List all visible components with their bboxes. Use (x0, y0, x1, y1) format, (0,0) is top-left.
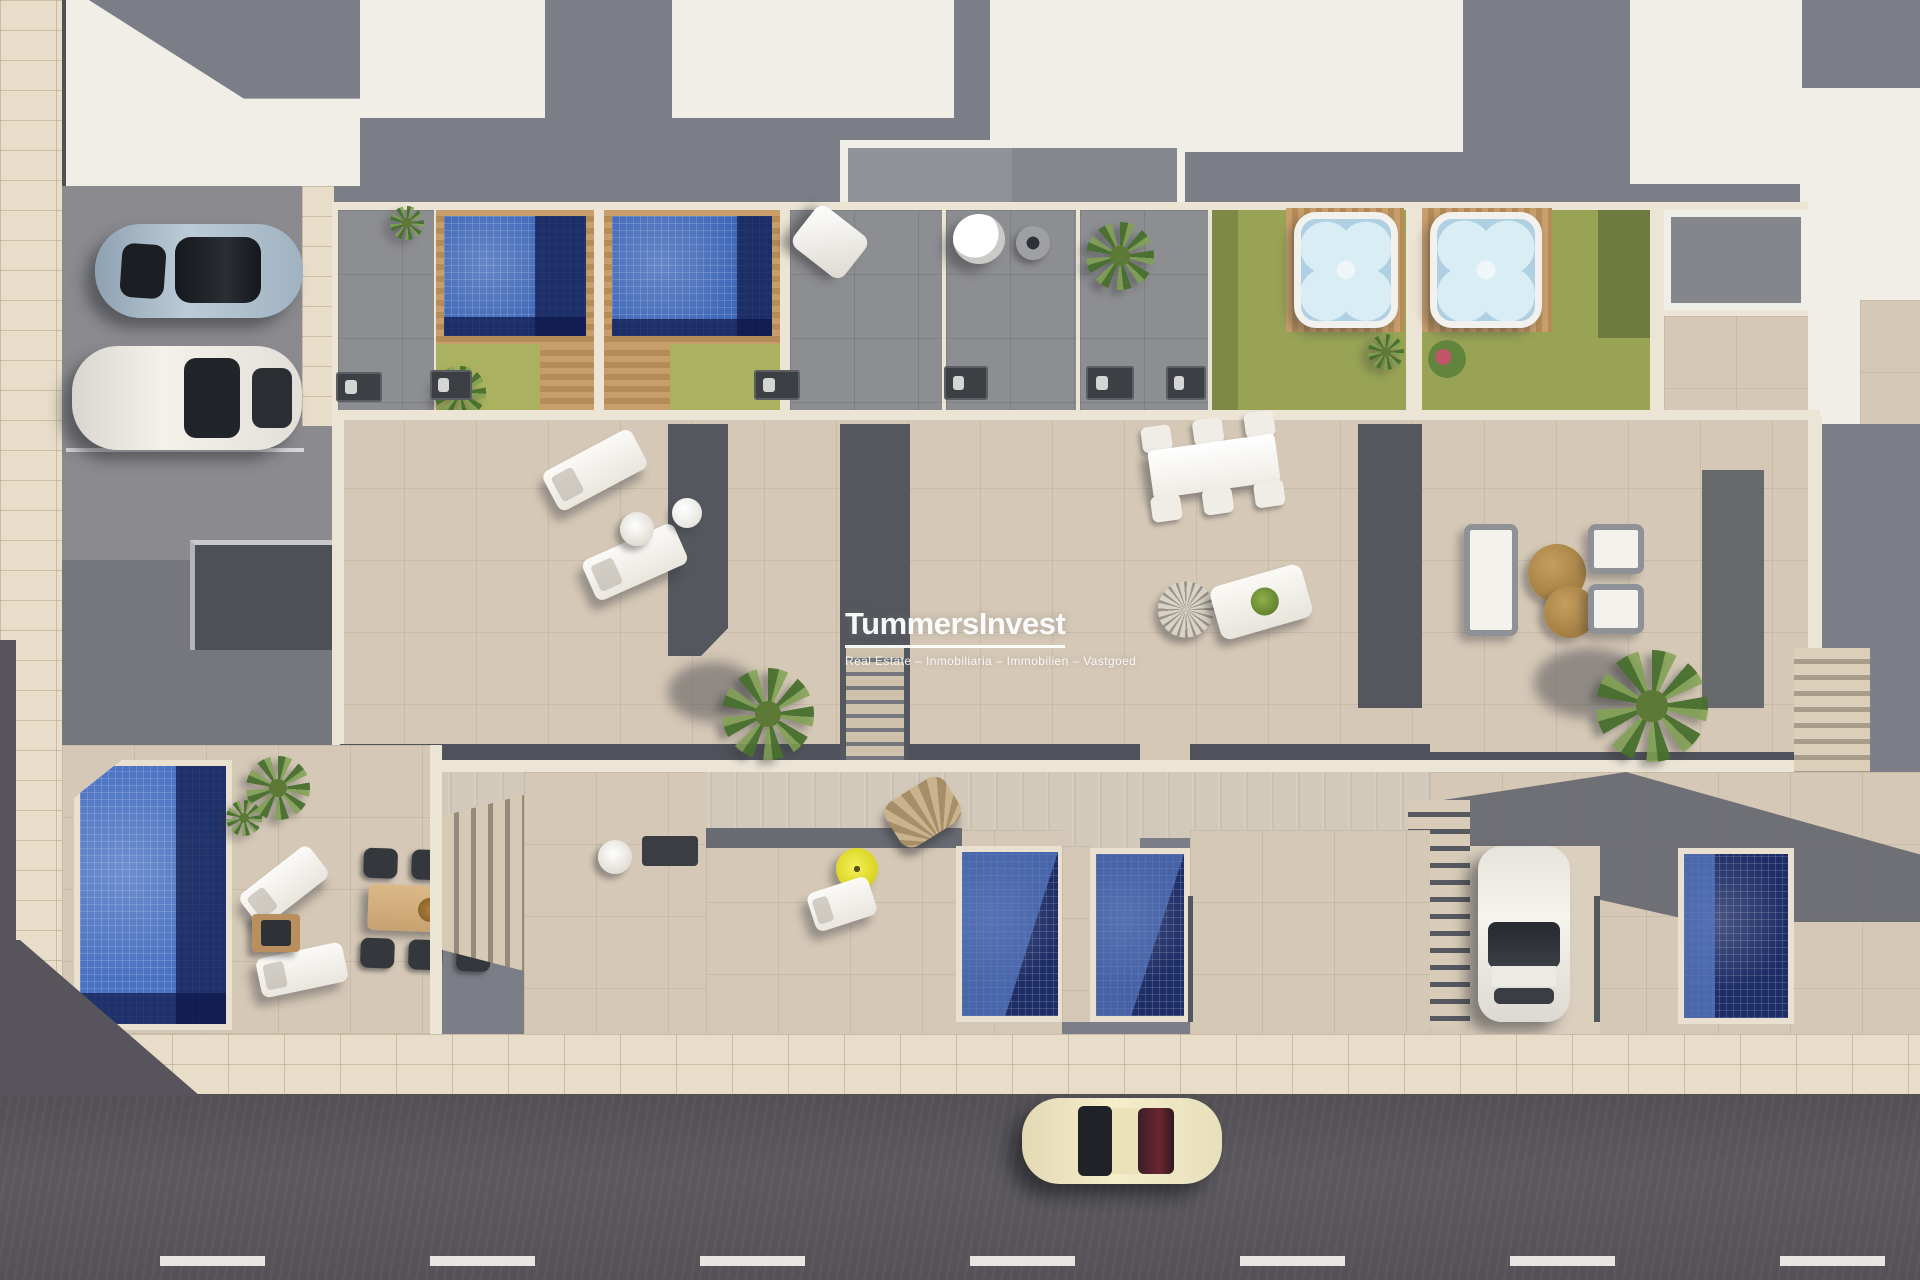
rooftop-3 (672, 0, 954, 118)
dining-chair (1253, 479, 1286, 509)
lane-marking (700, 1256, 805, 1266)
aerial-render: TummersInvest Real Estate – Inmobiliaria… (0, 0, 1920, 1280)
outdoor-kitchen-1 (336, 372, 382, 402)
deck-path-2 (604, 344, 670, 416)
jacuzzi-1 (1294, 212, 1398, 328)
jacuzzi-divider-wall (1406, 202, 1422, 424)
terrace-bottom-shadow-3 (1190, 744, 1430, 760)
rooftop-4 (990, 0, 1185, 140)
storage-unit (190, 540, 334, 650)
rooftop-5 (1185, 0, 1463, 152)
driveway-car-windshield (1488, 922, 1560, 968)
lane-marking (430, 1256, 535, 1266)
outdoor-sofa (1464, 524, 1518, 636)
patio-4-post-shadow (1188, 896, 1193, 1022)
pool-shadow-overlay-2b (612, 319, 772, 336)
rooftop-6 (1630, 0, 1802, 184)
fire-table-top (261, 920, 292, 946)
sedan-windshield (184, 358, 240, 438)
fire-table (252, 914, 300, 952)
decor-ball (672, 498, 702, 528)
right-tile-patch (1860, 300, 1920, 424)
garden-pool (74, 760, 232, 1030)
lane-marking (1780, 1256, 1885, 1266)
lawn-shadow-edge (1212, 210, 1238, 416)
street (0, 1094, 1920, 1280)
street-car-windshield (1078, 1106, 1112, 1176)
garden-pool-shadow (176, 766, 226, 1024)
garden-chair (363, 848, 398, 879)
pergola-roof-right (1140, 772, 1430, 838)
rooftop-pool-1 (444, 216, 586, 336)
watermark: TummersInvest Real Estate – Inmobiliaria… (845, 606, 1136, 668)
patio-2 (524, 772, 706, 1040)
plunge-pool-1 (956, 846, 1064, 1022)
deck-steps-1 (540, 344, 594, 416)
watermark-subtitle: Real Estate – Inmobiliaria – Immobilien … (845, 654, 1136, 668)
patio-2-bench (642, 836, 698, 866)
garden-stairs (442, 795, 524, 971)
plunge-pool-light-strip (1684, 854, 1715, 1018)
rooftop-pool-2 (612, 216, 772, 336)
lawn-tuft (1368, 334, 1404, 370)
lane-marking (1240, 1256, 1345, 1266)
lane-marking (970, 1256, 1075, 1266)
plunge-pool-2 (1090, 848, 1190, 1022)
round-fire-pit (1016, 226, 1050, 260)
garden-right-wall (430, 745, 442, 1041)
terrace-palm-1 (722, 668, 814, 760)
terrace-palm-2 (1596, 650, 1708, 762)
right-terrace-stairs (1794, 648, 1870, 776)
patio-4 (1190, 830, 1430, 1040)
garden-plant-2 (226, 800, 262, 836)
sports-car (95, 224, 303, 318)
sports-car-rear-glass (119, 243, 167, 300)
driveway-car (1478, 846, 1570, 1022)
driveway-car-rear-glass (1494, 988, 1554, 1004)
lawn-right-wall (1650, 202, 1664, 424)
driveway-car-roof (1492, 966, 1556, 986)
outdoor-kitchen-4 (944, 366, 988, 400)
lane-marking (1510, 1256, 1615, 1266)
roof-patio-frame-inner (1012, 148, 1177, 204)
watermark-title: TummersInvest (845, 606, 1065, 648)
green-tuft-1 (390, 206, 424, 240)
street-car-rear-glass (1138, 1108, 1174, 1174)
outdoor-kitchen-2 (430, 370, 472, 400)
patio-palm (1086, 222, 1154, 290)
outdoor-kitchen-6 (1166, 366, 1206, 400)
terrace-top-wall (332, 410, 1820, 420)
lawn-shadow-wedge (1598, 210, 1650, 338)
terrace-bottom-shadow-2 (908, 744, 1140, 760)
rooftop-7 (1800, 88, 1920, 210)
plunge-pool-right (1678, 848, 1794, 1024)
party-wall-shadow-3 (1358, 424, 1422, 708)
rose-bush (1424, 338, 1470, 380)
curb-line (62, 0, 66, 186)
sedan-rear-glass (252, 368, 292, 428)
sidewalk-band (60, 1034, 1920, 1096)
sedan-car (72, 346, 302, 450)
dining-chair (1150, 493, 1183, 523)
pool-divider-strip (1062, 846, 1092, 1022)
right-terrace-upper (1664, 316, 1808, 420)
garden-chair (360, 938, 395, 969)
hanging-chair (953, 214, 1005, 264)
lounge-chair-1 (1588, 524, 1644, 574)
side-table (620, 512, 654, 546)
terrace-left-wall (332, 416, 344, 776)
pool-shadow-overlay-b (444, 317, 586, 336)
patio-2-table (598, 840, 632, 874)
wall-shadow-line (1594, 896, 1600, 1022)
plunge-pool-1-light (962, 852, 1058, 1016)
dining-chair (1201, 486, 1234, 516)
outdoor-kitchen-5 (1086, 366, 1134, 400)
pool-shadow-overlay-2 (737, 216, 772, 336)
street-car (1022, 1098, 1222, 1184)
terrace4-wall-shadow (1702, 470, 1764, 708)
roof-patio-right (1664, 210, 1808, 310)
plunge-pool-2-light (1096, 854, 1184, 1016)
rooftop-2 (360, 0, 545, 118)
street-car-roof (1112, 1108, 1138, 1174)
outdoor-kitchen-3 (754, 370, 800, 400)
sports-car-cabin (175, 237, 261, 303)
parking-tile-patch (302, 186, 334, 426)
lounge-chair-2 (1588, 584, 1644, 634)
lane-marking (160, 1256, 265, 1266)
jacuzzi-2 (1430, 212, 1542, 328)
